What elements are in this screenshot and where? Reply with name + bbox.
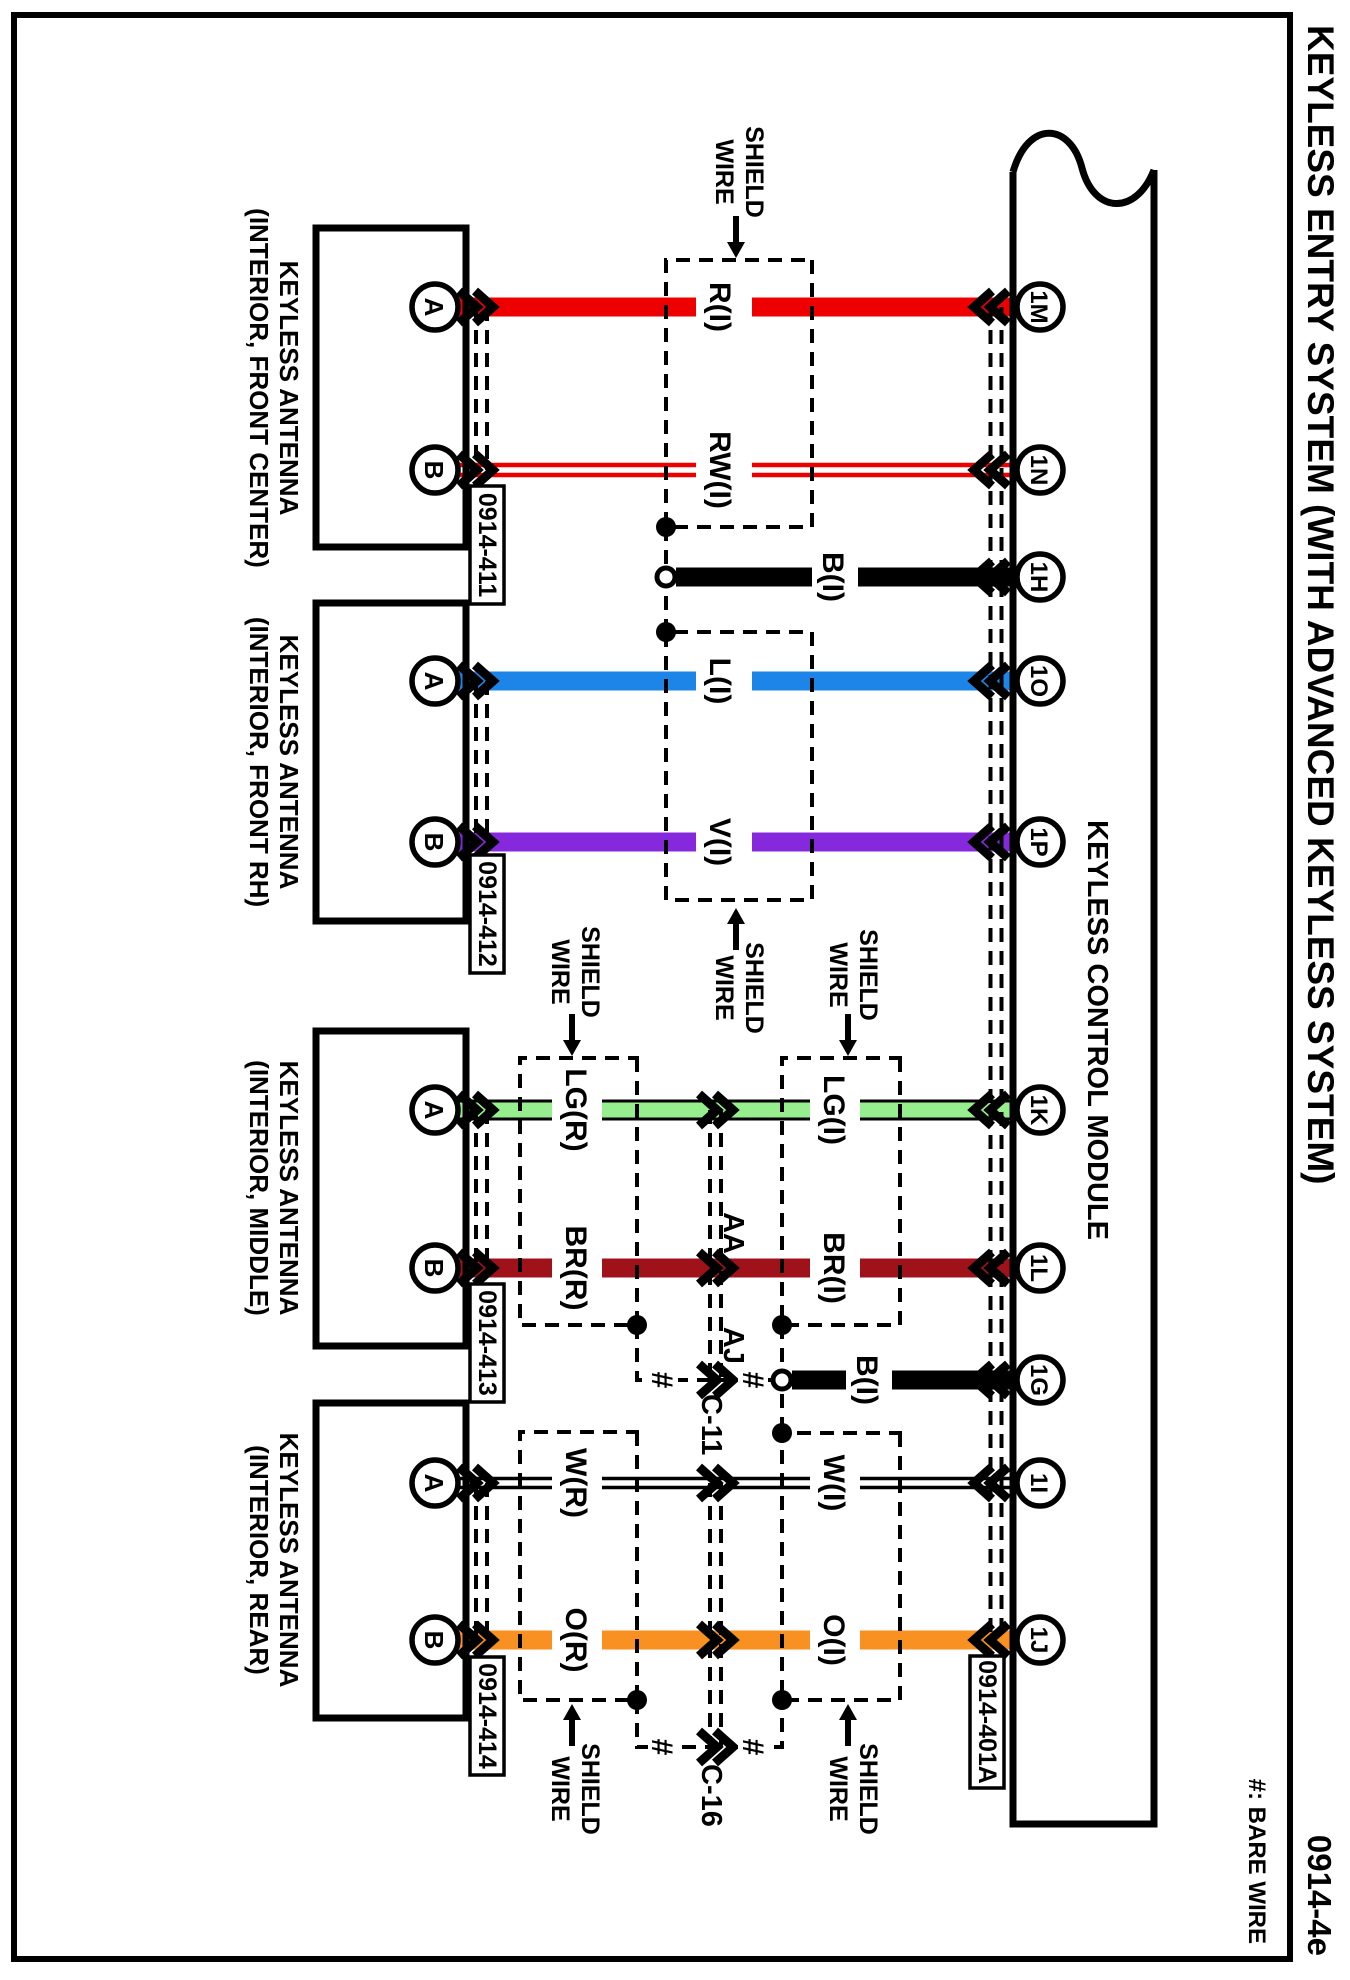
antenna1-name-line1: KEYLESS ANTENNA — [274, 261, 304, 516]
shield-callout-text: WIRE — [546, 939, 574, 1004]
bare-wire-legend: #: BARE WIRE — [1243, 1779, 1270, 1944]
wire-label-lg-i: LG(I) — [817, 1075, 850, 1145]
shield-callout-text: SHIELD — [740, 942, 768, 1034]
shield-callout-text: WIRE — [824, 942, 852, 1007]
wire-label-o-r: O(R) — [559, 1608, 592, 1673]
module-name: KEYLESS CONTROL MODULE — [1081, 820, 1113, 1240]
antenna4-name-line2: (INTERIOR, REAR) — [244, 1445, 274, 1675]
bare-wire-mark: # — [736, 1372, 769, 1389]
antenna-middle: A B 0914-413 KEYLESS ANTENNA (INTERIOR, … — [244, 1031, 504, 1402]
wire-label-w-i: W(I) — [817, 1455, 850, 1512]
wire-label-r: R(I) — [703, 282, 736, 332]
wire-label-w-r: W(R) — [559, 1448, 592, 1518]
antenna3-pin-a: A — [419, 1101, 449, 1120]
shield-callout-text: WIRE — [546, 1756, 574, 1821]
shield-wire-callouts: SHIELD WIRE SHIELD WIRE SHIELD WIRE SHIE… — [546, 126, 882, 1835]
antenna2-name-line1: KEYLESS ANTENNA — [274, 635, 304, 890]
wire-label-b2: B(I) — [850, 1355, 883, 1405]
antenna4-name-line1: KEYLESS ANTENNA — [274, 1433, 304, 1688]
module-connector-code: 0914-401A — [973, 1660, 1001, 1784]
chevron-icon — [699, 1731, 733, 1763]
arrow-left-icon — [563, 1704, 581, 1746]
wire-label-l: L(I) — [703, 658, 736, 705]
shield-callout-text: SHIELD — [576, 926, 604, 1018]
antenna1-pin-a: A — [419, 298, 449, 317]
shield-callout-text: WIRE — [710, 955, 738, 1020]
wire-label-br-i: BR(I) — [817, 1232, 850, 1304]
module-pin-1g: 1G — [1025, 1364, 1052, 1396]
chevron-icon — [699, 1467, 733, 1499]
shield-callout-text: WIRE — [824, 1756, 852, 1821]
antenna3-name-line1: KEYLESS ANTENNA — [274, 1061, 304, 1316]
page-title: KEYLESS ENTRY SYSTEM (WITH ADVANCED KEYL… — [1300, 25, 1341, 1184]
antenna4-pin-b: B — [419, 1631, 449, 1650]
antenna3-pin-b: B — [419, 1259, 449, 1278]
c16-label: C-16 — [695, 1764, 727, 1827]
antenna2-pin-b: B — [419, 833, 449, 852]
ground-junction-2 — [773, 1371, 791, 1389]
manual-page: R(I) RW(I) L(I) V(I) B(I) B(I) LG(I) BR(… — [0, 0, 1350, 1980]
antenna3-connector-code: 0914-413 — [473, 1290, 501, 1396]
keyless-control-module: KEYLESS CONTROL MODULE 1M 1N 1H 1O 1P 1K… — [970, 133, 1154, 1824]
antenna3-name-line2: (INTERIOR, MIDDLE) — [244, 1060, 274, 1316]
arrow-right-icon — [563, 1014, 581, 1056]
antenna4-connector-code: 0914-414 — [473, 1663, 501, 1769]
antenna4-pin-a: A — [419, 1474, 449, 1493]
module-pin-1i: 1I — [1025, 1473, 1052, 1493]
module-pin-1o: 1O — [1025, 665, 1052, 697]
shield-callout-text: SHIELD — [854, 1743, 882, 1835]
antenna1-name-line2: (INTERIOR, FRONT CENTER) — [244, 208, 274, 568]
antenna-front-center: A B 0914-411 KEYLESS ANTENNA (INTERIOR, … — [244, 208, 504, 604]
bare-wire-mark: # — [736, 1739, 769, 1756]
module-pin-1h: 1H — [1025, 562, 1052, 593]
shield-callout-text: WIRE — [710, 139, 738, 204]
antenna2-name-line2: (INTERIOR, FRONT RH) — [244, 617, 274, 907]
ground-junction-1 — [657, 568, 675, 586]
wiring-diagram: R(I) RW(I) L(I) V(I) B(I) B(I) LG(I) BR(… — [0, 0, 1350, 1980]
antenna2-connector-code: 0914-412 — [473, 861, 501, 967]
arrow-right-icon — [727, 216, 745, 258]
module-pin-1m: 1M — [1025, 290, 1052, 323]
arrow-left-icon — [839, 1704, 857, 1746]
wire-label-v: V(I) — [703, 818, 736, 866]
shield-callout-text: SHIELD — [740, 126, 768, 218]
module-pin-1p: 1P — [1025, 827, 1052, 856]
antenna1-connector-code: 0914-411 — [473, 493, 501, 597]
rotated-diagram-stage: R(I) RW(I) L(I) V(I) B(I) B(I) LG(I) BR(… — [0, 0, 1350, 1980]
shield-callout-text: SHIELD — [576, 1743, 604, 1835]
antenna1-pin-b: B — [419, 461, 449, 480]
c11-pin-aa-label: AA — [717, 1212, 749, 1254]
page-code: 0914-4e — [1301, 1835, 1338, 1956]
wire-label-lg-r: LG(R) — [559, 1068, 592, 1151]
shield-callout-text: SHIELD — [854, 929, 882, 1021]
module-pin-1j: 1J — [1025, 1627, 1052, 1654]
wire-label-rw: RW(I) — [703, 431, 736, 509]
antenna-front-rh: A B 0914-412 KEYLESS ANTENNA (INTERIOR, … — [244, 603, 504, 973]
antenna2-pin-a: A — [419, 672, 449, 691]
module-pin-1l: 1L — [1025, 1254, 1052, 1282]
c11-label: C-11 — [695, 1394, 727, 1455]
bare-wire-mark: # — [645, 1372, 678, 1389]
wire-label-o-i: O(I) — [817, 1614, 850, 1666]
bare-wire-mark: # — [645, 1739, 678, 1756]
antenna-rear: A B 0914-414 KEYLESS ANTENNA (INTERIOR, … — [244, 1403, 504, 1775]
module-break-squiggle — [1013, 133, 1154, 203]
wire-label-br-r: BR(R) — [559, 1226, 592, 1311]
module-pin-1k: 1K — [1025, 1095, 1052, 1126]
c11-pin-aj-label: AJ — [717, 1327, 749, 1364]
module-pin-1n: 1N — [1025, 455, 1052, 486]
wire-label-b1: B(I) — [816, 552, 849, 602]
